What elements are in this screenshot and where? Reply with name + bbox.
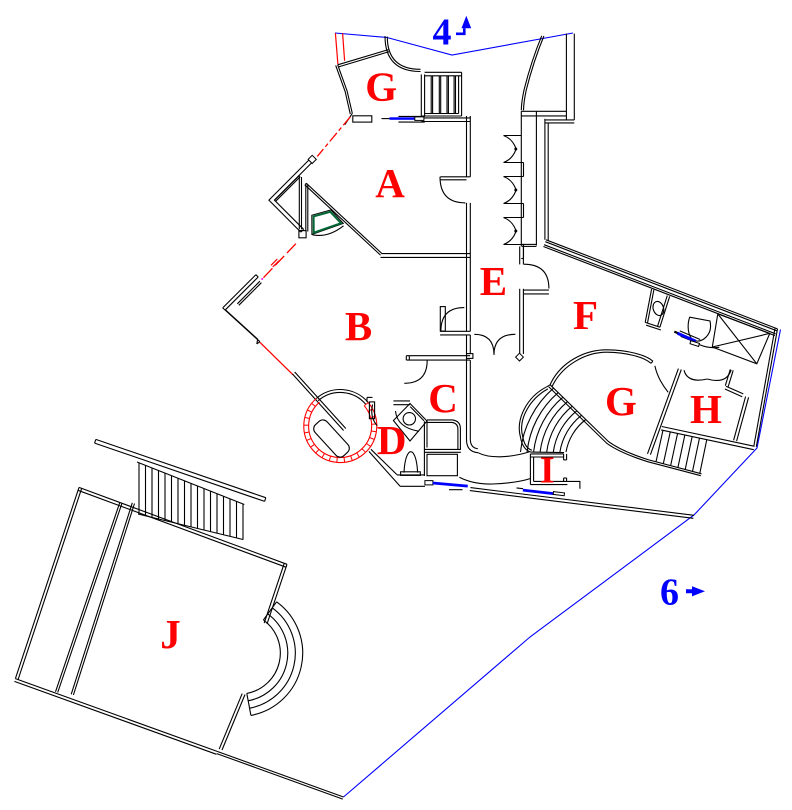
svg-text:E: E [480,258,507,304]
svg-text:D: D [377,417,407,463]
svg-text:4: 4 [433,11,452,53]
svg-text:A: A [375,160,405,206]
svg-text:G: G [605,378,637,424]
svg-text:G: G [365,64,397,110]
svg-text:J: J [160,611,181,657]
svg-text:6: 6 [660,572,679,614]
svg-text:I: I [540,449,555,491]
svg-text:F: F [573,292,598,338]
svg-text:H: H [690,386,722,432]
svg-text:B: B [345,303,372,349]
svg-text:C: C [428,375,458,421]
